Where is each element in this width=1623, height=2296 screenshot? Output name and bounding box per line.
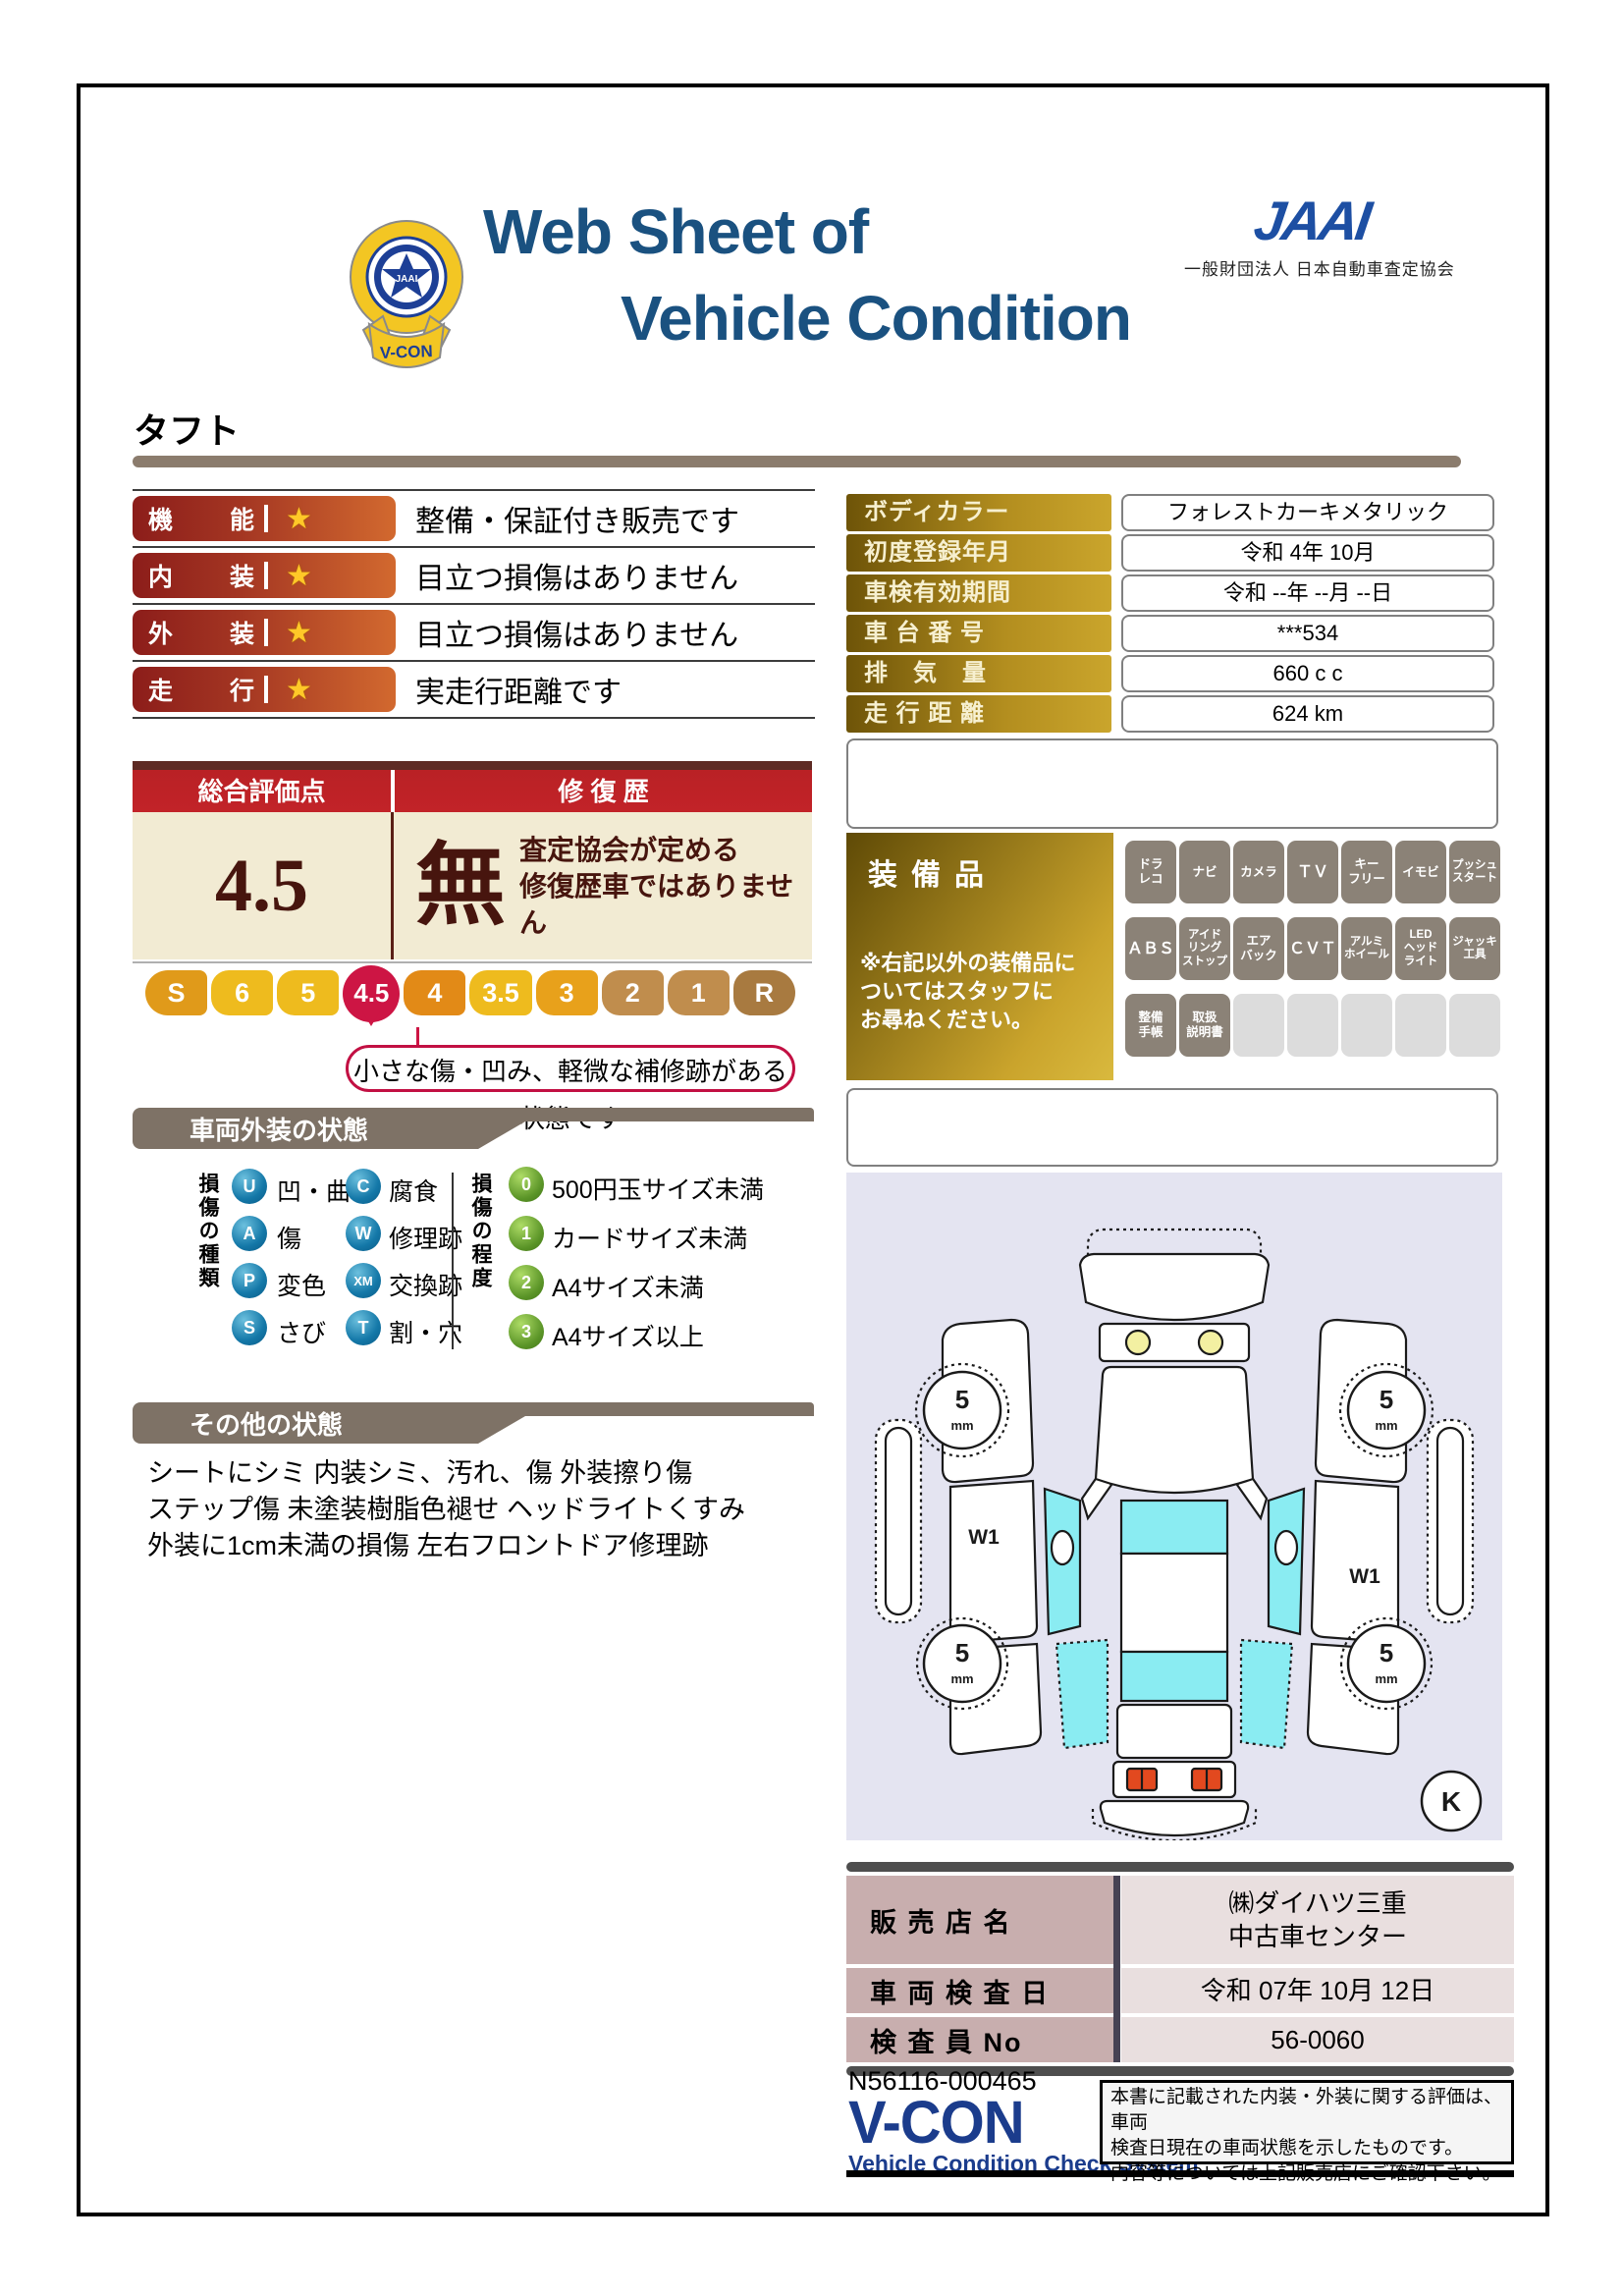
repair-history: 無 査定協会が定める 修復歴車ではありません: [391, 812, 812, 959]
degree-code-2: 2: [509, 1265, 544, 1300]
overall-score-title: 総合評価点: [133, 761, 391, 812]
table-top-bar: [846, 1862, 1514, 1872]
pill-divider: [264, 619, 268, 646]
grade-callout: 小さな傷・凹み、軽微な補修跡がある状態です: [346, 1045, 795, 1092]
kind-code-A: A: [232, 1216, 267, 1251]
rear-bumper: [1101, 1801, 1248, 1835]
rating-row-interior: 内装 ★ 目立つ損傷はありません: [133, 546, 815, 603]
tread-rear-right: 5: [1380, 1638, 1393, 1667]
rating-row-exterior: 外装 ★ 目立つ損傷はありません: [133, 603, 815, 660]
rating-label: 機能: [148, 501, 254, 536]
page-title-line2: Vehicle Condition: [621, 275, 1131, 361]
dealer-label: 検 査 員 No: [846, 2017, 1113, 2062]
pill-divider: [264, 562, 268, 589]
table-divider: [1113, 1876, 1120, 2062]
dealer-rows: 販 売 店 名 ㈱ダイハツ三重 中古車センター 車 両 検 査 日 令和 07年…: [846, 1876, 1514, 2062]
degree-code-0: 0: [509, 1167, 544, 1202]
repair-note: 査定協会が定める 修復歴車ではありません: [519, 832, 812, 941]
tread-front-left: 5: [955, 1385, 969, 1414]
tread-rear-left: 5: [955, 1638, 969, 1667]
grade-seg-R: R: [733, 970, 795, 1015]
equipment-note: ※右記以外の装備品に ついてはスタッフに お尋ねください。: [860, 949, 1075, 1034]
dealer-label: 販 売 店 名: [846, 1876, 1113, 1964]
degree-label-2: A4サイズ未満: [552, 1269, 704, 1304]
hood: [1080, 1254, 1269, 1320]
degree-code-1: 1: [509, 1216, 544, 1251]
kind-code-P: P: [232, 1263, 267, 1298]
dealer-label: 車 両 検 査 日: [846, 1968, 1113, 2013]
equip-badge-empty: [1287, 994, 1338, 1057]
grade-seg-2: 2: [602, 970, 664, 1015]
star-icon: ★: [286, 502, 312, 536]
pill-divider: [264, 676, 268, 703]
info-label: ボディカラー: [846, 494, 1111, 531]
info-row-first-registration: 初度登録年月 令和 4年 10月: [846, 534, 1494, 572]
dealer-value: 令和 07年 10月 12日: [1121, 1968, 1514, 2013]
front-panel: [1100, 1324, 1249, 1361]
svg-text:mm: mm: [1375, 1418, 1397, 1433]
headlight-right: [1199, 1331, 1222, 1354]
glass-roof: [1121, 1501, 1227, 1554]
equip-badge-empty: [1395, 994, 1446, 1057]
damage-mark-right-door: W1: [1349, 1565, 1380, 1588]
rating-label: 内装: [148, 558, 254, 593]
equip-badge-airbag: エア バック: [1233, 917, 1284, 980]
tread-front-right: 5: [1380, 1385, 1393, 1414]
kind-label-A: 傷: [277, 1220, 301, 1255]
repair-history-title: 修 復 歴: [395, 761, 812, 812]
legend-divider: [452, 1173, 454, 1349]
overall-header: 総合評価点 修 復 歴: [133, 761, 812, 812]
equip-badge-idling-stop: アイド リング ストップ: [1179, 917, 1230, 980]
kind-label-U: 凹・曲: [277, 1173, 351, 1208]
equip-badge-dashcam: ドラ レコ: [1125, 841, 1176, 903]
rating-list: 機能 ★ 整備・保証付き販売です 内装 ★ 目立つ損傷はありません 外装 ★ 目…: [133, 489, 815, 719]
grade-seg-1: 1: [668, 970, 730, 1015]
disclaimer-note: 本書に記載された内装・外装に関する評価は、車両 検査日現在の車両状態を示したもの…: [1100, 2080, 1514, 2164]
equip-badge-empty: [1449, 994, 1500, 1057]
rating-label: 外装: [148, 615, 254, 650]
rating-comment: 目立つ損傷はありません: [415, 554, 738, 597]
star-icon: ★: [286, 616, 312, 650]
info-value: 624 km: [1121, 695, 1494, 733]
rear-window: [1121, 1652, 1227, 1701]
inspector-mark: K: [1441, 1786, 1461, 1817]
rating-row-mileage: 走行 ★ 実走行距離です: [133, 660, 815, 719]
vehicle-name: タフト: [134, 403, 240, 454]
equipment-title: 装備品: [868, 850, 998, 894]
equipment-panel: 装備品 ※右記以外の装備品に ついてはスタッフに お尋ねください。: [846, 833, 1113, 1080]
repair-none-mark: 無: [415, 841, 506, 931]
equip-badge-push-start: プッシュ スタート: [1449, 841, 1500, 903]
star-icon: ★: [286, 673, 312, 707]
equip-badge-camera: カメラ: [1233, 841, 1284, 903]
degree-code-3: 3: [509, 1314, 544, 1349]
damage-degree-title: 損傷の程度: [465, 1173, 495, 1347]
equip-badge-keyfree: キー フリー: [1341, 841, 1392, 903]
rating-pill: 走行 ★: [133, 667, 396, 712]
equip-badge-led-headlights: LED ヘッド ライト: [1395, 917, 1446, 980]
rating-pill: 内装 ★: [133, 553, 396, 598]
kind-code-C: C: [346, 1169, 381, 1204]
equipment-badges: ドラ レコ ナビ カメラ ＴＶ キー フリー イモビ プッシュ スタート ＡＢＳ…: [1125, 841, 1496, 1057]
damage-kind-title: 損傷の種類: [192, 1173, 222, 1347]
kind-code-T: T: [346, 1310, 381, 1345]
info-value: フォレストカーキメタリック: [1121, 494, 1494, 531]
headlight-left: [1126, 1331, 1150, 1354]
callout-connector: [416, 1027, 419, 1047]
dealer-value: ㈱ダイハツ三重 中古車センター: [1121, 1876, 1514, 1964]
jaai-logo: JAAI: [1250, 189, 1373, 252]
dealer-row-inspection-date: 車 両 検 査 日 令和 07年 10月 12日: [846, 1968, 1514, 2013]
grade-seg-3: 3: [536, 970, 598, 1015]
equip-badge-empty: [1233, 994, 1284, 1057]
grade-seg-5: 5: [277, 970, 339, 1015]
info-label: 車 台 番 号: [846, 615, 1111, 652]
empty-remarks-box: [846, 1088, 1498, 1167]
pill-divider: [264, 505, 268, 532]
kind-code-W: W: [346, 1216, 381, 1251]
overall-body: 4.5 無 査定協会が定める 修復歴車ではありません: [133, 812, 812, 959]
divider-bar: [133, 456, 1461, 467]
info-value: 令和 --年 --月 --日: [1121, 574, 1494, 612]
rating-row-function: 機能 ★ 整備・保証付き販売です: [133, 489, 815, 546]
kind-code-XM: XM: [346, 1263, 381, 1298]
dealer-row-shop: 販 売 店 名 ㈱ダイハツ三重 中古車センター: [846, 1876, 1514, 1964]
jaai-org-name: 一般財団法人 日本自動車査定協会: [1184, 255, 1455, 280]
equip-badge-navi: ナビ: [1179, 841, 1230, 903]
grade-seg-4: 4: [404, 970, 465, 1015]
rating-comment: 目立つ損傷はありません: [415, 611, 738, 654]
equip-badge-service-book: 整備 手帳: [1125, 994, 1176, 1057]
vcon-badge-logo: JAAI V-CON: [344, 214, 469, 379]
empty-info-box: [846, 738, 1498, 829]
vcon-logo: V-CON: [848, 2088, 1024, 2157]
vehicle-condition-sheet: JAAI V-CON Web Sheet of Vehicle Conditio…: [0, 0, 1623, 2296]
overall-evaluation: 総合評価点 修 復 歴 4.5 無 査定協会が定める 修復歴車ではありません: [133, 761, 812, 959]
equip-badge-abs: ＡＢＳ: [1125, 917, 1176, 980]
svg-text:JAAI: JAAI: [396, 274, 418, 285]
degree-label-3: A4サイズ以上: [552, 1318, 704, 1353]
other-condition-notes: シートにシミ 内装シミ、汚れ、傷 外装擦り傷 ステップ傷 未塗装樹脂色褪せ ヘッ…: [147, 1455, 745, 1564]
svg-text:mm: mm: [950, 1671, 973, 1686]
info-label: 初度登録年月: [846, 534, 1111, 572]
kind-label-P: 変色: [277, 1267, 326, 1302]
info-row-mileage: 走 行 距 離 624 km: [846, 695, 1494, 733]
rating-pill: 外装 ★: [133, 610, 396, 655]
kind-code-U: U: [232, 1169, 267, 1204]
overall-score: 4.5: [133, 812, 391, 959]
equip-badge-jack-tools: ジャッキ 工具: [1449, 917, 1500, 980]
vcon-badge-icon: JAAI V-CON: [344, 214, 469, 379]
info-label: 車検有効期間: [846, 574, 1111, 612]
page-title-line1: Web Sheet of: [483, 189, 1131, 275]
grade-seg-3-5: 3.5: [469, 970, 531, 1015]
info-row-body-color: ボディカラー フォレストカーキメタリック: [846, 494, 1494, 531]
equip-badge-owners-manual: 取扱 説明書: [1179, 994, 1230, 1057]
rating-comment: 実走行距離です: [415, 668, 622, 711]
equipment-section: 装備品 ※右記以外の装備品に ついてはスタッフに お尋ねください。 ドラ レコ …: [846, 833, 1494, 1080]
roof-panel: [1121, 1554, 1227, 1652]
svg-text:mm: mm: [1375, 1671, 1397, 1686]
equip-badge-immobilizer: イモビ: [1395, 841, 1446, 903]
info-value: 令和 4年 10月: [1121, 534, 1494, 572]
svg-text:V-CON: V-CON: [380, 342, 433, 362]
kind-code-S: S: [232, 1310, 267, 1345]
kind-label-S: さび: [277, 1314, 326, 1349]
tailgate: [1117, 1705, 1231, 1758]
info-row-chassis-number: 車 台 番 号 ***534: [846, 615, 1494, 652]
rating-label: 走行: [148, 672, 254, 707]
damage-mark-left-door: W1: [968, 1526, 1000, 1549]
svg-text:mm: mm: [950, 1418, 973, 1433]
grade-scale: S 6 5 4.5 4 3.5 3 2 1 R: [145, 970, 795, 1027]
kind-label-C: 腐食: [389, 1173, 438, 1208]
info-row-displacement: 排 気 量 660 c c: [846, 655, 1494, 692]
equip-badge-cvt: ＣＶＴ: [1287, 917, 1338, 980]
grade-seg-6: 6: [211, 970, 273, 1015]
vehicle-exterior-diagram: 5 mm 5 mm 5 mm 5 mm W1 W1 K: [846, 1173, 1502, 1840]
grade-seg-S: S: [145, 970, 207, 1015]
underline: [133, 961, 812, 963]
degree-label-0: 500円玉サイズ未満: [552, 1171, 764, 1206]
equip-badge-empty: [1341, 994, 1392, 1057]
car-butterfly-diagram: 5 mm 5 mm 5 mm 5 mm W1 W1 K: [846, 1173, 1502, 1840]
rating-comment: 整備・保証付き販売です: [415, 497, 739, 540]
info-row-inspection-validity: 車検有効期間 令和 --年 --月 --日: [846, 574, 1494, 612]
info-label: 走 行 距 離: [846, 695, 1111, 733]
rating-pill: 機能 ★: [133, 496, 396, 541]
footer-rule: [846, 2170, 1514, 2177]
equip-badge-alloy-wheels: アルミ ホイール: [1341, 917, 1392, 980]
degree-label-1: カードサイズ未満: [552, 1220, 747, 1255]
dealer-value: 56-0060: [1121, 2017, 1514, 2062]
info-label: 排 気 量: [846, 655, 1111, 692]
page-title: Web Sheet of Vehicle Condition: [483, 189, 1131, 361]
windshield: [1096, 1367, 1253, 1493]
grade-seg-4-5-active: 4.5: [343, 965, 400, 1022]
info-value: ***534: [1121, 615, 1494, 652]
dealer-table: 販 売 店 名 ㈱ダイハツ三重 中古車センター 車 両 検 査 日 令和 07年…: [846, 1862, 1514, 2076]
dealer-row-inspector-no: 検 査 員 No 56-0060: [846, 2017, 1514, 2062]
info-value: 660 c c: [1121, 655, 1494, 692]
star-icon: ★: [286, 559, 312, 593]
equip-badge-tv: ＴＶ: [1287, 841, 1338, 903]
